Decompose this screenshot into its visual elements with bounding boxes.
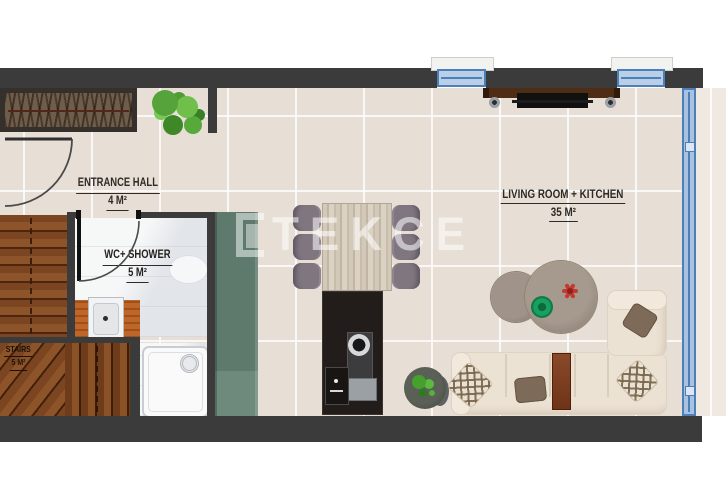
watermark: TEKCE: [236, 210, 476, 260]
room-label-living: LIVING ROOM + KITCHEN 35 M²: [460, 186, 666, 222]
watermark-text: TEKCE: [272, 208, 476, 262]
window-mullion: [685, 386, 695, 396]
room-area: 4 M²: [106, 194, 128, 212]
sofa-seam: [607, 354, 609, 397]
tv-screen-line: [512, 100, 593, 103]
balcony-floor: [696, 88, 726, 416]
red-flower-icon: [561, 282, 579, 300]
shower-drain-icon: [180, 354, 199, 373]
kitchen-cabinet-icon: [325, 367, 349, 405]
kitchen-plant-icon: [404, 367, 446, 409]
room-area: 5 M²: [9, 357, 26, 370]
window-icon-2: [617, 69, 665, 87]
floor-plan: ENTRANCE HALL 4 M² WC+ SHOWER 5 M² LIVIN…: [0, 0, 726, 485]
door-jamb-left: [76, 210, 81, 219]
succulent-icon: [531, 296, 553, 318]
room-name: LIVING ROOM + KITCHEN: [501, 186, 625, 204]
window-icon-1: [437, 69, 486, 87]
dining-chair-icon: [293, 263, 321, 289]
pillow-icon: [514, 375, 547, 403]
wall-stairs-divider: [0, 337, 140, 343]
room-name: WC+ SHOWER: [103, 248, 173, 266]
stairs-walkline: [30, 218, 32, 334]
kitchen-island-icon: [322, 291, 383, 415]
sofa-seam: [549, 354, 551, 397]
sofa-seam: [505, 354, 507, 397]
door-jamb-right: [136, 210, 141, 219]
wall-bottom: [0, 416, 702, 442]
room-name: STAIRS: [4, 344, 32, 357]
wardrobe-hangers-icon: [0, 88, 137, 132]
sofa-seam: [574, 354, 576, 397]
room-label-stairs: STAIRS 5 M²: [0, 344, 50, 371]
speaker-icon: [489, 97, 500, 108]
shower-tray-icon: [142, 346, 209, 418]
room-area: 5 M²: [126, 266, 148, 284]
room-label-wc: WC+ SHOWER 5 M²: [60, 248, 215, 283]
wall-wc-right: [207, 212, 215, 416]
watermark-logo-icon: [236, 213, 264, 257]
wall-wc-top-b: [140, 212, 215, 218]
room-label-entrance: ENTRANCE HALL 4 M²: [40, 176, 195, 211]
room-name: ENTRANCE HALL: [76, 176, 159, 194]
window-icon-vertical: [682, 88, 696, 416]
faucet-icon: [103, 316, 108, 321]
window-mullion: [685, 142, 695, 152]
washbasin-icon: [88, 297, 124, 342]
wall-stub: [208, 88, 217, 133]
stairs-walkline-2: [96, 346, 98, 412]
stairs-upper-flight: [0, 215, 67, 337]
wall-shower-side: [130, 342, 140, 416]
wall-top-right: [665, 68, 703, 88]
dining-chair-icon: [392, 263, 420, 289]
room-area: 35 M²: [549, 204, 577, 222]
entrance-plant-icon: [152, 90, 178, 116]
wall-top-left: [0, 68, 437, 88]
stove-icon: [348, 378, 377, 401]
sofa-tray-icon: [552, 353, 571, 410]
wall-top-mid: [486, 68, 617, 88]
speaker-icon: [605, 97, 616, 108]
kitchen-sink-icon: [348, 334, 370, 356]
